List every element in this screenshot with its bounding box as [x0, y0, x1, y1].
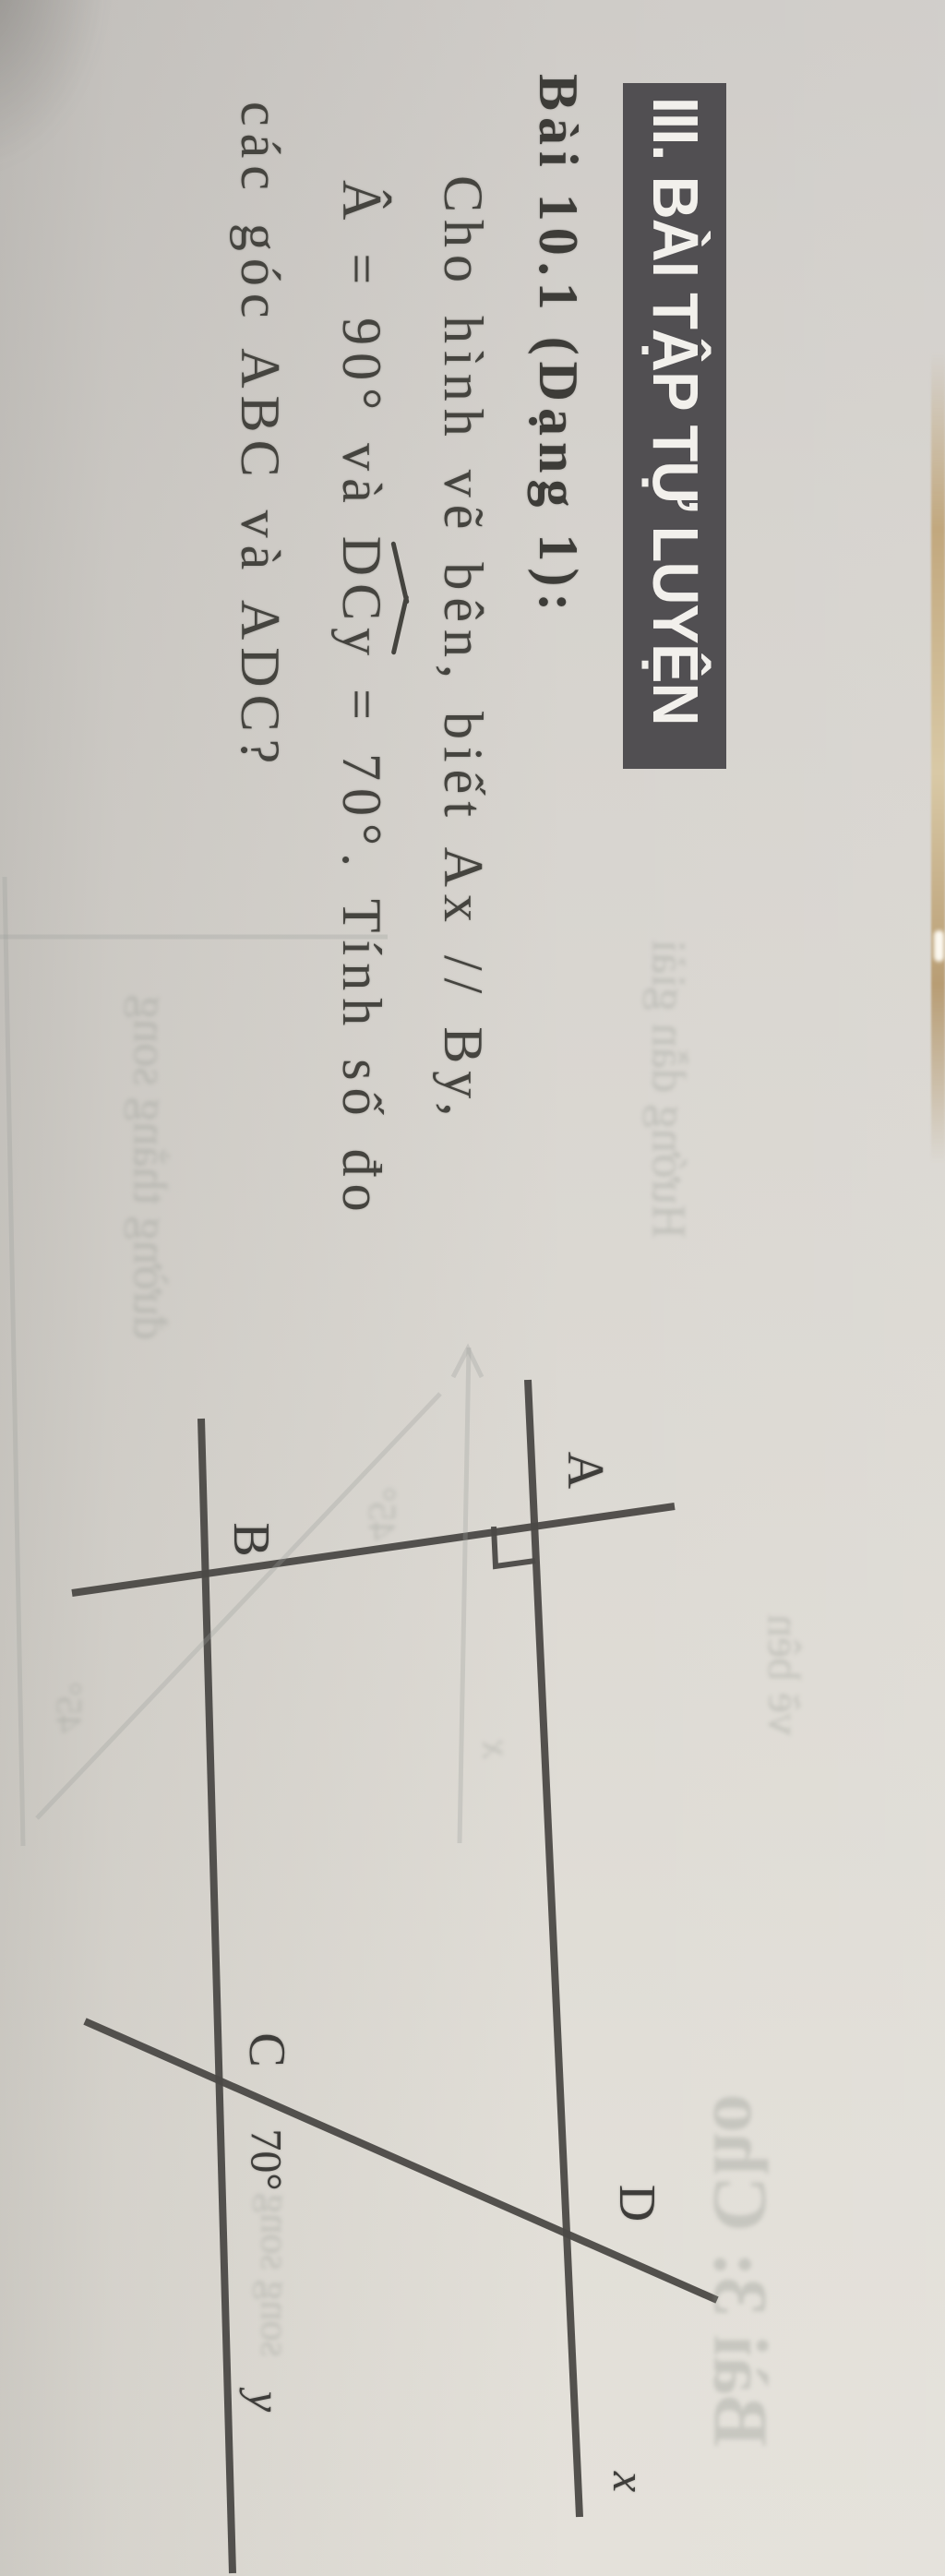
photo-of-textbook-page: III. BÀI TẬP TỰ LUYỆN Bài 10.1 (Dạng 1):…	[0, 0, 945, 2576]
ghost-line-bottom	[5, 877, 23, 1846]
label-y: y	[238, 2391, 292, 2412]
label-x: x	[603, 2472, 656, 2492]
ghost-line-ray	[460, 1348, 469, 1843]
ghost-line-diagonal	[37, 1394, 440, 1818]
ghost-text-45a: 45°	[359, 1487, 403, 1541]
line-DC	[85, 2021, 717, 2300]
ghost-text-bai3: Bài 3: Cho	[696, 2094, 785, 2448]
ghost-text-45b: 45°	[48, 1682, 91, 1733]
ghost-text-veben: vẽ bên	[758, 1614, 811, 1736]
ghost-text-songsong: song song	[252, 2193, 299, 2356]
rotated-page-content: III. BÀI TẬP TỰ LUYỆN Bài 10.1 (Dạng 1):…	[0, 0, 945, 2576]
label-C: C	[237, 2032, 296, 2067]
ghost-text-huongdan: Hướng dẫn giải	[641, 940, 696, 1239]
ghost-text-x: x	[473, 1740, 520, 1758]
label-B: B	[221, 1522, 281, 1556]
label-D: D	[607, 2185, 666, 2222]
ghost-text-duongthang: đường thẳng song	[123, 995, 177, 1339]
label-A: A	[556, 1452, 615, 1489]
line-Ax	[528, 1380, 580, 2517]
line-By	[201, 1419, 233, 2573]
label-angle-70: 70°	[241, 2128, 292, 2190]
